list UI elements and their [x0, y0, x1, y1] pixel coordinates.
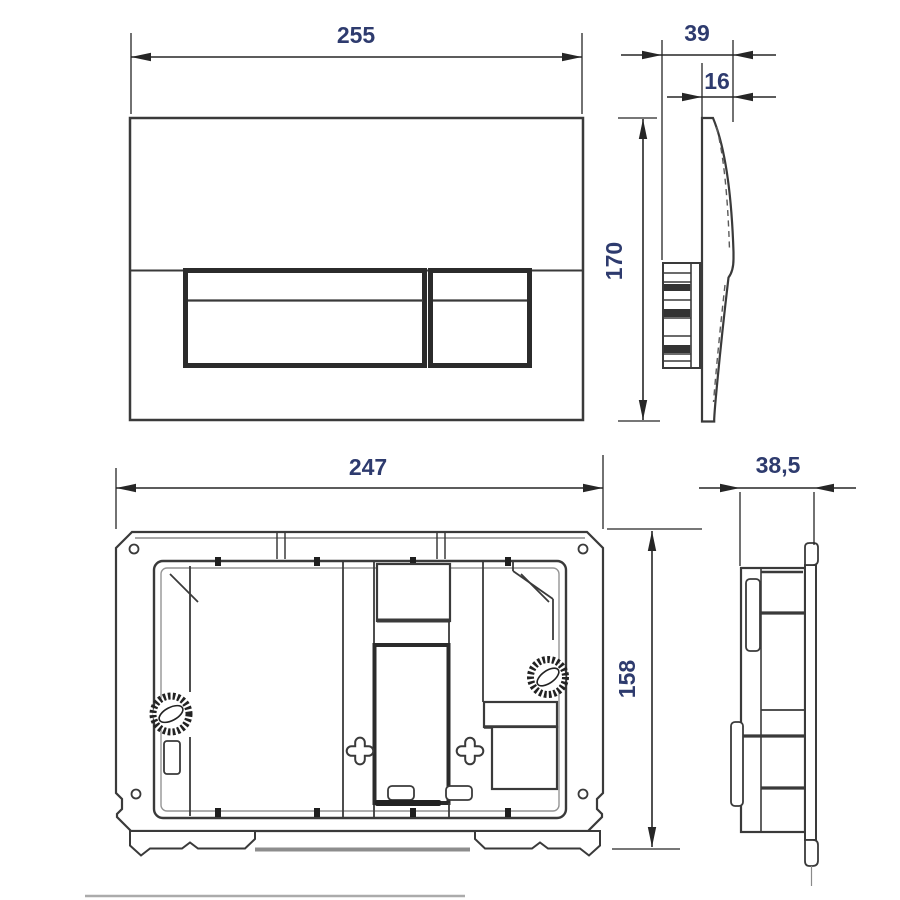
valve-box-lower [492, 727, 557, 789]
bottom-latch-bar [375, 800, 441, 806]
frame-foot-right [475, 831, 600, 856]
clip-mark [215, 808, 221, 817]
flush-button-small [431, 271, 530, 366]
dim-label-plate-height: 170 [601, 242, 627, 280]
frame-side-protrusion-bottom [731, 722, 743, 806]
dimension-plate-width: 255 [131, 22, 582, 114]
frame-side-view [731, 543, 818, 886]
screw-hole [130, 545, 139, 554]
frame-side-tab-bottom [805, 840, 818, 866]
dimension-plate-depth: 39 [621, 20, 776, 260]
arrowhead-right [562, 53, 582, 61]
dim-label-plate-thickness: 16 [704, 68, 730, 94]
arrowhead-down [639, 400, 647, 420]
dimension-plate-height: 170 [601, 118, 660, 421]
clip-mark [505, 557, 511, 566]
arrowhead-left-in [733, 93, 753, 101]
frame-side-tab-top [805, 543, 818, 565]
dim-label-frame-width: 247 [349, 454, 387, 480]
dimension-frame-height: 158 [607, 529, 702, 849]
arrowhead-right-in [720, 484, 740, 492]
screw-hole [132, 790, 141, 799]
dimension-frame-depth: 38,5 [699, 452, 856, 566]
bottom-slot [446, 786, 472, 800]
dim-label-plate-depth: 39 [684, 20, 710, 46]
frame-foot-left [130, 831, 255, 856]
mechanism-rib-band [664, 309, 690, 317]
frame-front-view [116, 532, 603, 856]
dim-label-frame-height: 158 [614, 660, 640, 699]
dimension-frame-width: 247 [116, 454, 603, 529]
arrowhead-up [648, 531, 656, 551]
arrowhead-left-in [733, 51, 753, 59]
clip-mark [215, 557, 221, 566]
dim-label-frame-depth: 38,5 [756, 452, 801, 478]
button-mechanism-side [663, 263, 700, 368]
mechanism-rib-band [664, 284, 690, 291]
plate-side-view [663, 118, 734, 422]
bottom-slot [388, 786, 414, 800]
dim-label-plate-width: 255 [337, 22, 376, 48]
plate-front-view [130, 118, 583, 420]
arrowhead-left [131, 53, 151, 61]
arrowhead-right-in [682, 93, 702, 101]
mechanism-rib-band [664, 345, 690, 353]
flush-button-large [186, 271, 425, 366]
dimension-plate-thickness: 16 [667, 63, 776, 117]
arrowhead-down [648, 827, 656, 847]
screw-hole [579, 790, 588, 799]
arrowhead-left [116, 484, 136, 492]
drawing-page: 255 170 [0, 0, 900, 900]
arrowhead-right [583, 484, 603, 492]
arrowhead-right-in [642, 51, 662, 59]
arrowhead-up [639, 119, 647, 139]
overflow-opening [377, 564, 450, 621]
clip-mark [410, 808, 416, 817]
technical-drawing-canvas: 255 170 [0, 0, 900, 900]
screw-hole [579, 545, 588, 554]
arrowhead-left-in [814, 484, 834, 492]
clip-mark [314, 808, 320, 817]
frame-side-plate [805, 565, 816, 840]
frame-side-protrusion-top [746, 579, 760, 651]
left-panel-slot [164, 741, 180, 774]
valve-box-upper [484, 702, 557, 727]
clip-mark [314, 557, 320, 566]
pushrod-window [375, 645, 449, 803]
clip-mark [505, 808, 511, 817]
plate-profile [702, 118, 734, 422]
